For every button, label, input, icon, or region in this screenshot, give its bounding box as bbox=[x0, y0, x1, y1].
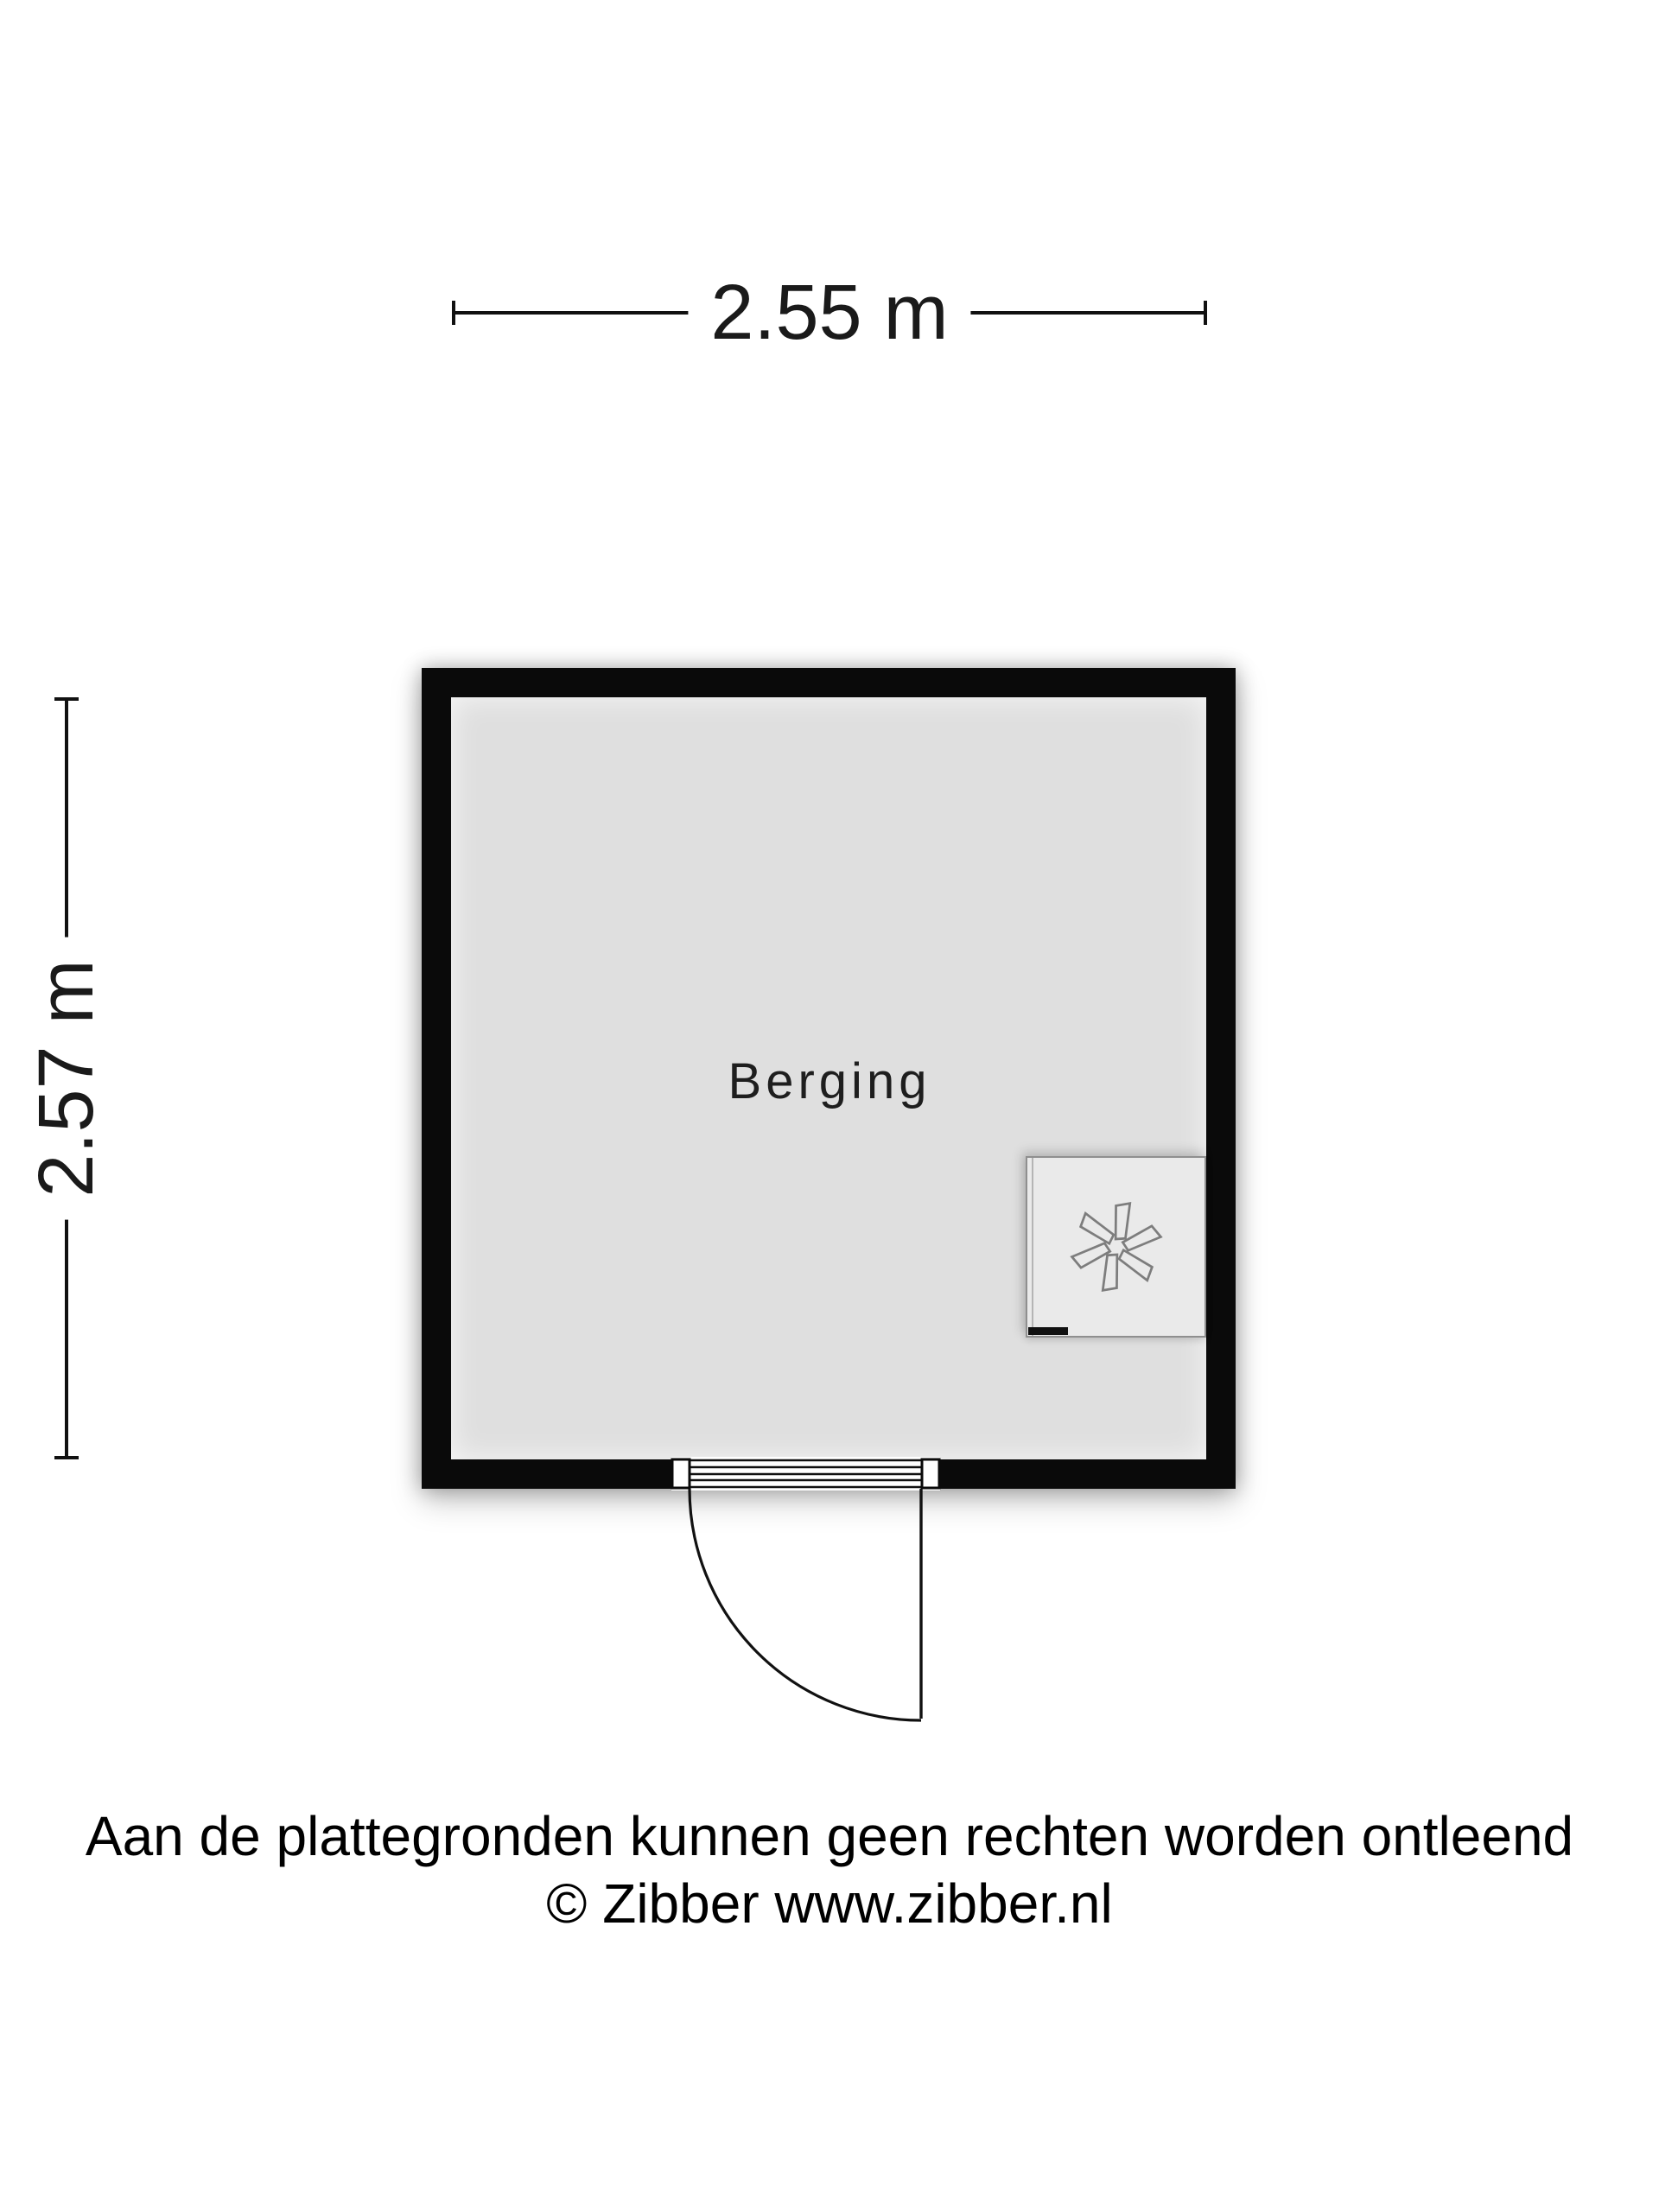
dimension-height-label: 2.57 m bbox=[26, 937, 108, 1219]
door-jamb-right bbox=[922, 1459, 939, 1488]
door-jamb-left bbox=[672, 1459, 690, 1488]
door-swing-arc bbox=[690, 1489, 921, 1720]
dimension-width-label: 2.55 m bbox=[688, 272, 970, 354]
dimension-height: 2.57 m bbox=[54, 697, 79, 1459]
dimension-width: 2.55 m bbox=[452, 301, 1207, 325]
ventilation-unit-latch bbox=[1028, 1327, 1068, 1335]
copyright-text: © Zibber www.zibber.nl bbox=[0, 1870, 1659, 1937]
ventilation-unit bbox=[1026, 1156, 1206, 1338]
floorplan-page: 2.55 m 2.57 m Berging bbox=[0, 0, 1659, 2212]
dimension-width-tick-left bbox=[452, 301, 455, 325]
dimension-height-tick-bottom bbox=[54, 1456, 79, 1459]
disclaimer-text: Aan de plattegronden kunnen geen rechten… bbox=[0, 1802, 1659, 1870]
room-name-label: Berging bbox=[728, 1052, 931, 1110]
dimension-width-tick-right bbox=[1204, 301, 1207, 325]
footer-disclaimer: Aan de plattegronden kunnen geen rechten… bbox=[0, 1802, 1659, 1937]
ventilation-unit-edge bbox=[1032, 1158, 1033, 1336]
door bbox=[665, 1452, 950, 1737]
fan-icon bbox=[1062, 1192, 1171, 1301]
dimension-height-tick-top bbox=[54, 697, 79, 701]
